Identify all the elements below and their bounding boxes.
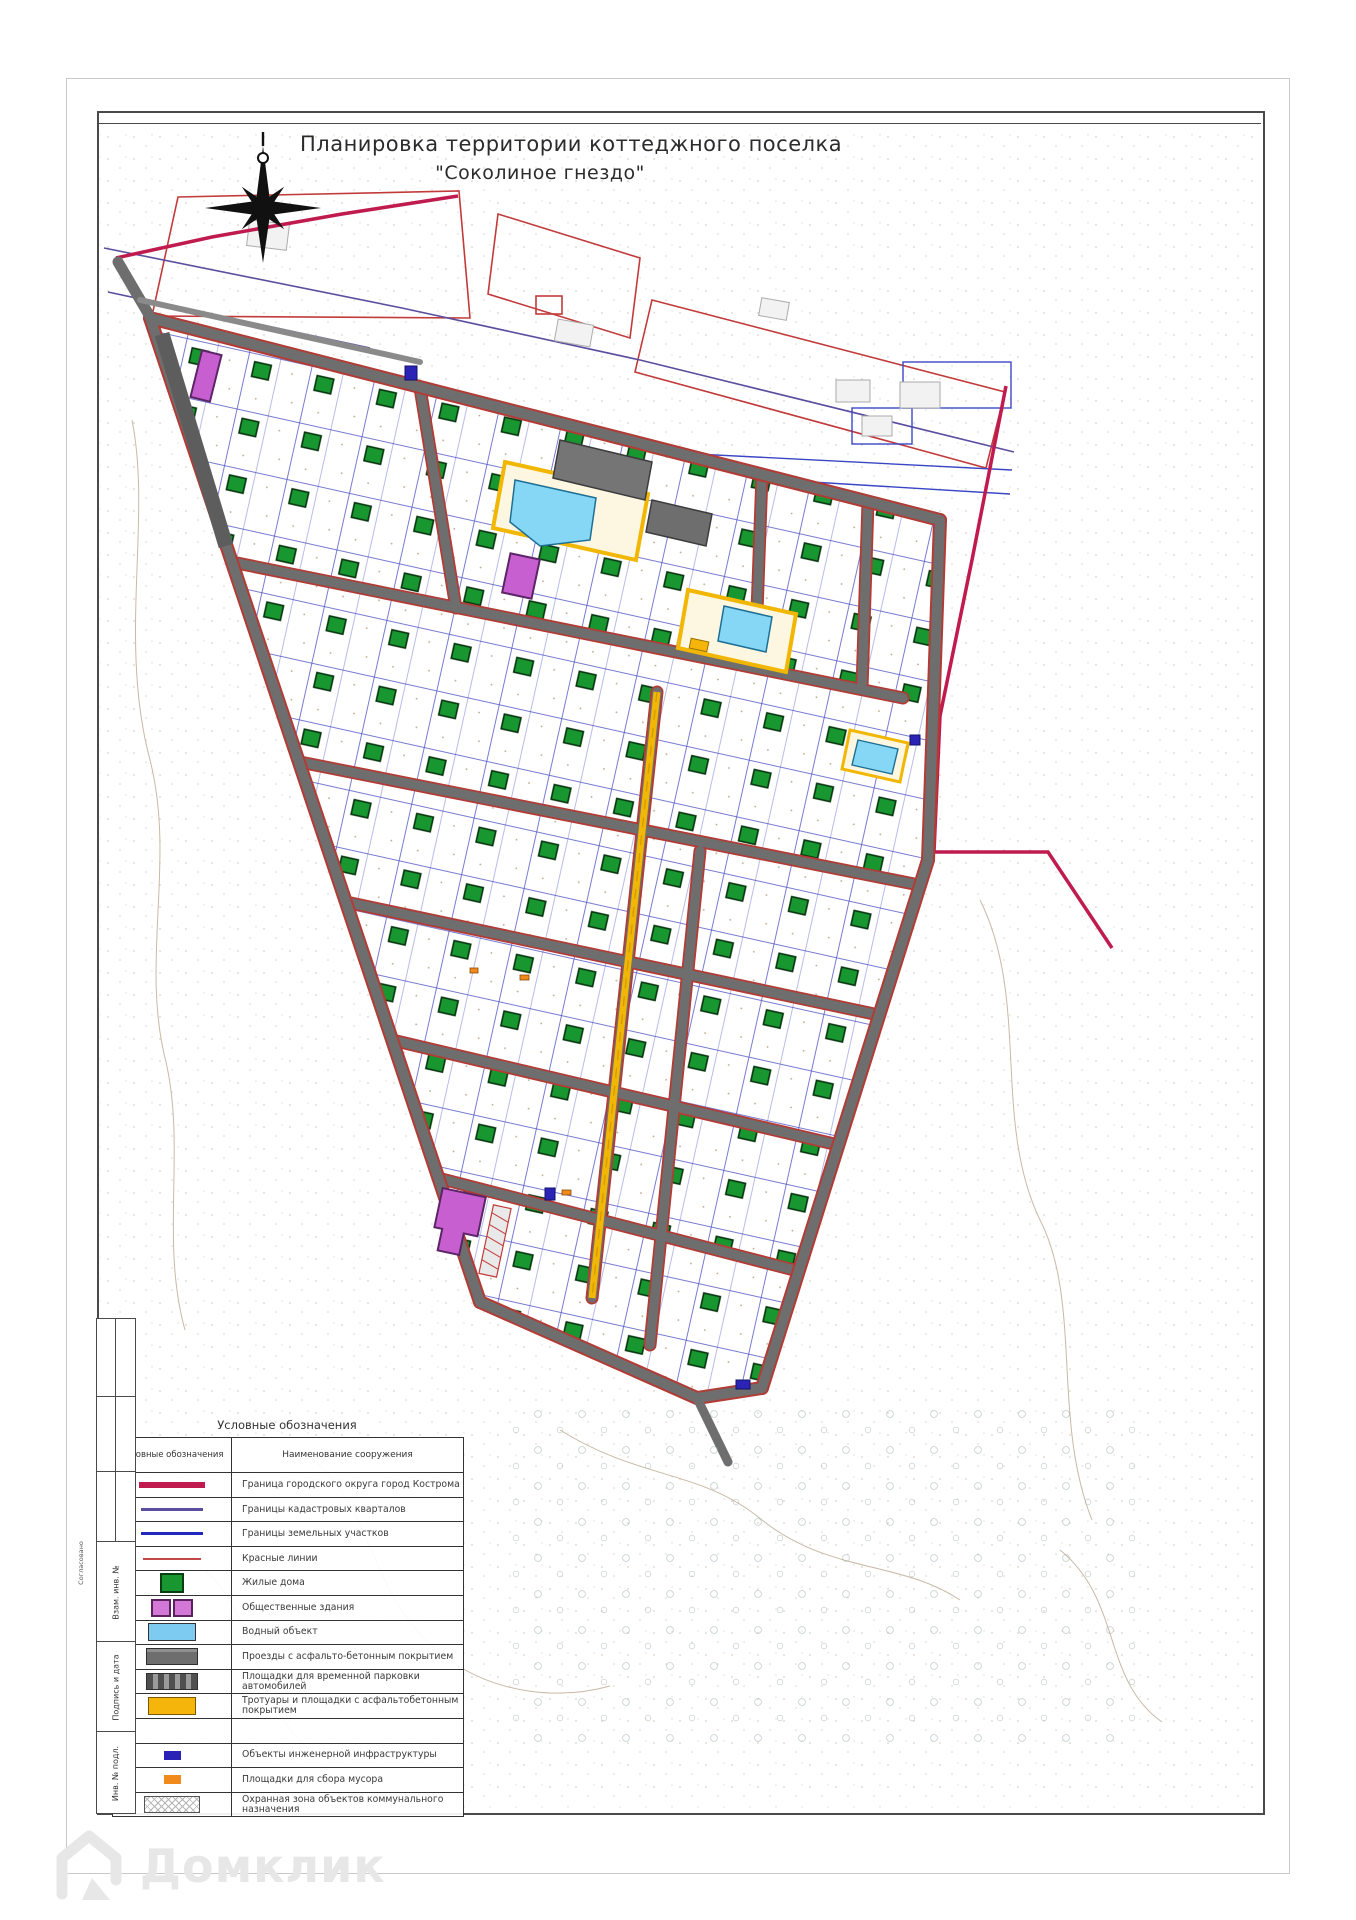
legend-label: Объекты инженерной инфраструктуры xyxy=(232,1744,463,1768)
legend-row: Граница городского округа город Кострома xyxy=(113,1473,463,1498)
titleblock-cell-vzam: Взам. инв. № xyxy=(97,1541,135,1642)
legend-row: Проезды с асфальто-бетонным покрытием xyxy=(113,1645,463,1670)
legend-label: Границы кадастровых кварталов xyxy=(232,1498,463,1522)
legend-row: Тротуары и площадки с асфальтобетонным п… xyxy=(113,1694,463,1719)
titleblock-divider xyxy=(115,1319,116,1541)
legend-row: Жилые дома xyxy=(113,1571,463,1596)
legend-title: Условные обозначения xyxy=(112,1418,462,1432)
legend-row: Общественные здания xyxy=(113,1596,463,1621)
watermark: Домклик xyxy=(52,1828,386,1904)
legend-label: Площадки для сбора мусора xyxy=(232,1768,463,1792)
drawing-frame-topline xyxy=(97,123,1261,124)
legend-row: Объекты инженерной инфраструктуры xyxy=(113,1744,463,1769)
title-line2: "Соколиное гнездо" xyxy=(300,162,780,184)
titleblock-cell-inv: Инв. № подл. xyxy=(97,1731,135,1814)
page-title: Планировка территории коттеджного поселк… xyxy=(300,132,780,184)
legend-row: Площадки для сбора мусора xyxy=(113,1768,463,1793)
plan-sheet: Планировка территории коттеджного поселк… xyxy=(0,0,1356,1920)
legend-label: Водный объект xyxy=(232,1621,463,1645)
legend-label: Проезды с асфальто-бетонным покрытием xyxy=(232,1645,463,1669)
legend-row: Красные линии xyxy=(113,1547,463,1572)
legend-label: Площадки для временной парковки автомоби… xyxy=(232,1670,463,1694)
titleblock-approved: Согласовано xyxy=(74,1528,88,1598)
legend-label: Общественные здания xyxy=(232,1596,463,1620)
title-line1: Планировка территории коттеджного поселк… xyxy=(300,132,780,156)
legend-label: Граница городского округа город Кострома xyxy=(232,1473,463,1497)
legend-label: Жилые дома xyxy=(232,1571,463,1595)
legend-row: Площадки для временной парковки автомоби… xyxy=(113,1670,463,1695)
legend-label xyxy=(232,1719,463,1743)
legend-row: Водный объект xyxy=(113,1621,463,1646)
legend-label: Красные линии xyxy=(232,1547,463,1571)
watermark-text: Домклик xyxy=(140,1839,386,1893)
titleblock-cell-podpis: Подпись и дата xyxy=(97,1641,135,1732)
legend-row: Границы земельных участков xyxy=(113,1522,463,1547)
legend-rows: Граница городского округа город Кострома… xyxy=(113,1473,463,1816)
legend-row: Охранная зона объектов коммунального наз… xyxy=(113,1793,463,1817)
titleblock-strip: Взам. инв. № Подпись и дата Инв. № подл. xyxy=(96,1318,136,1814)
legend-label: Границы земельных участков xyxy=(232,1522,463,1546)
legend-col-name: Наименование сооружения xyxy=(232,1438,463,1472)
legend-label: Охранная зона объектов коммунального наз… xyxy=(232,1793,463,1817)
legend-header-row: Условные обозначения Наименование сооруж… xyxy=(113,1438,463,1473)
legend-row: Границы кадастровых кварталов xyxy=(113,1498,463,1523)
legend-label: Тротуары и площадки с асфальтобетонным п… xyxy=(232,1694,463,1718)
legend-table: Условные обозначения Наименование сооруж… xyxy=(112,1437,464,1817)
legend-row xyxy=(113,1719,463,1744)
watermark-house-icon xyxy=(52,1828,126,1904)
